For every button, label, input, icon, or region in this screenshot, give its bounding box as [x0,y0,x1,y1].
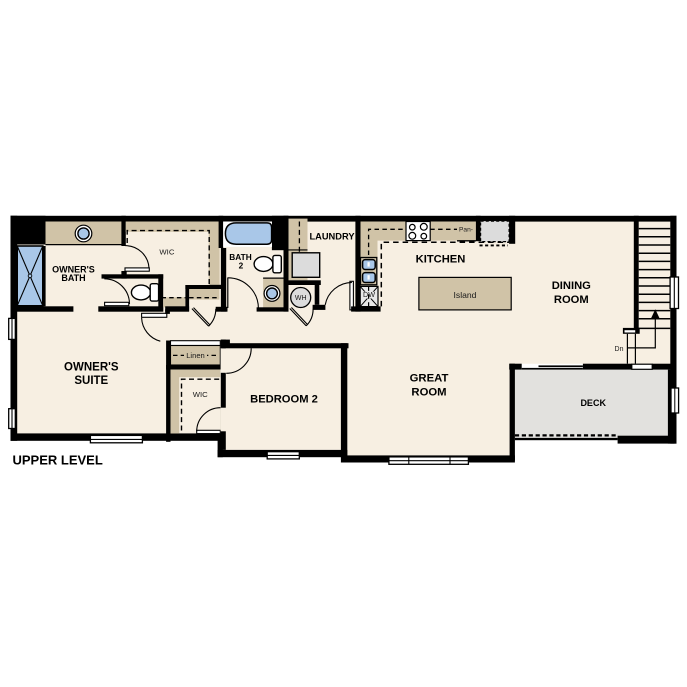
svg-text:2: 2 [239,261,244,271]
svg-text:ROOM: ROOM [554,294,589,306]
svg-text:SUITE: SUITE [74,375,108,387]
svg-text:WH: WH [295,295,307,302]
svg-text:KITCHEN: KITCHEN [416,254,466,266]
svg-text:BATH: BATH [61,273,85,283]
svg-text:LAUNDRY: LAUNDRY [309,232,355,242]
svg-text:BEDROOM 2: BEDROOM 2 [250,393,318,405]
svg-text:Pan-: Pan- [459,226,473,233]
svg-text:Island: Island [454,290,477,300]
svg-text:WIC: WIC [193,390,208,399]
svg-text:WIC: WIC [159,247,174,256]
svg-text:GREAT: GREAT [410,372,449,384]
svg-text:Dn: Dn [615,346,624,353]
svg-text:OWNER'S: OWNER'S [64,361,119,373]
svg-text:DECK: DECK [580,398,606,408]
svg-text:ROOM: ROOM [411,386,446,398]
svg-text:UPPER LEVEL: UPPER LEVEL [13,452,103,467]
svg-text:Linen: Linen [186,351,205,360]
svg-text:DINING: DINING [552,280,591,292]
